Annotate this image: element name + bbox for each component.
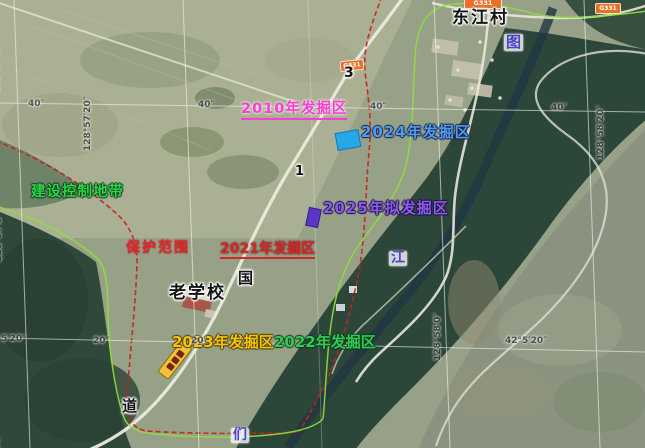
excavation-2024-label: 2024年发掘区: [361, 124, 471, 141]
excavation-2025-label: 2025年拟发掘区: [323, 200, 449, 217]
excavation-2023-label: 2023年发掘区: [172, 334, 274, 351]
river-name-char-tu: 图: [504, 34, 523, 51]
grid-tick-vertical: 128°58′20″: [596, 105, 606, 160]
river-name-char-men: 们: [231, 428, 249, 443]
grid-tick: 40″: [28, 99, 45, 109]
grid-tick-vertical: 128°57′0″: [0, 214, 4, 262]
grid-tick: 42°5′20″: [505, 336, 547, 346]
grid-tick-vertical: 50″: [0, 433, 2, 448]
road-name-char-dao: 道: [122, 398, 137, 415]
village-label: 东江村: [452, 9, 509, 28]
river-name-char-jiang: 江: [389, 251, 407, 266]
road-km-marker-3: 3: [344, 66, 354, 81]
grid-tick: 40″: [551, 103, 568, 113]
road-name-char-guo: 国: [238, 270, 253, 287]
grid-tick: 20″: [93, 336, 110, 346]
excavation-2022-label: 2022年发掘区: [274, 334, 376, 351]
excavation-2021-label: 2021年发掘区: [220, 242, 315, 259]
grid-tick: 40″: [198, 100, 215, 110]
grid-tick-vertical: 128°58′0″: [433, 313, 443, 361]
satellite-map-figure: G331 G331 G331 东江村 2010年发掘区 2024年发掘区 建设控…: [0, 0, 645, 448]
g331-road-badge-right: G331: [595, 3, 621, 14]
grid-tick: 5′20″: [1, 334, 26, 344]
grid-tick: 40″: [370, 102, 387, 112]
satellite-imagery: [0, 0, 645, 448]
excavation-2010-label: 2010年发掘区: [241, 102, 347, 120]
old-school-label: 老学校: [169, 284, 226, 303]
grid-tick: 20″: [191, 336, 208, 346]
construction-control-zone-label: 建设控制地带: [31, 185, 124, 201]
road-km-marker-1: 1: [295, 165, 304, 179]
grid-tick-vertical: 128°57′20″: [83, 96, 93, 151]
protection-zone-label: 保护范围: [126, 241, 190, 256]
grid-tick-vertical: 128°57′0″: [0, 46, 2, 94]
